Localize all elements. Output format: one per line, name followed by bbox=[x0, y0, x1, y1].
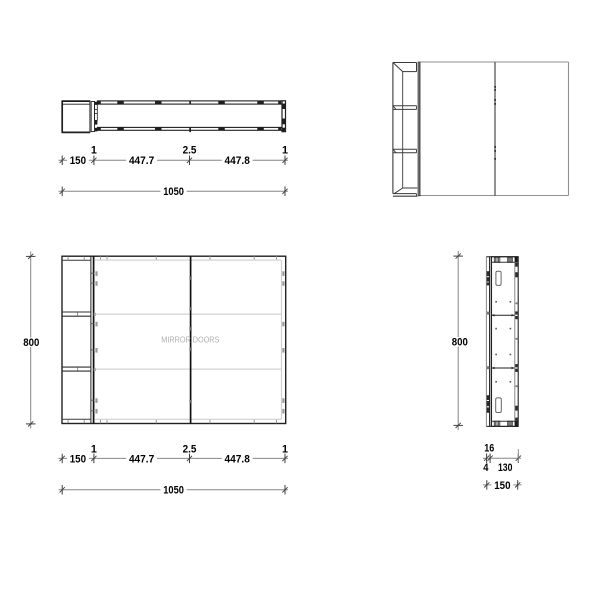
svg-text:447.7: 447.7 bbox=[129, 155, 154, 167]
svg-text:447.8: 447.8 bbox=[225, 155, 250, 167]
svg-text:447.8: 447.8 bbox=[225, 453, 250, 465]
svg-text:150: 150 bbox=[494, 480, 510, 492]
svg-text:800: 800 bbox=[452, 337, 468, 349]
svg-text:16: 16 bbox=[484, 443, 494, 455]
svg-text:1: 1 bbox=[282, 144, 288, 156]
svg-text:447.7: 447.7 bbox=[129, 453, 154, 465]
svg-text:1: 1 bbox=[282, 443, 288, 455]
svg-text:4: 4 bbox=[483, 462, 488, 474]
svg-text:1050: 1050 bbox=[163, 485, 184, 497]
svg-text:1: 1 bbox=[91, 443, 97, 455]
svg-text:2.5: 2.5 bbox=[183, 443, 197, 455]
svg-text:1: 1 bbox=[91, 144, 97, 156]
svg-text:1050: 1050 bbox=[163, 186, 184, 198]
svg-text:800: 800 bbox=[23, 337, 39, 349]
svg-text:130: 130 bbox=[498, 462, 513, 474]
svg-text:150: 150 bbox=[70, 453, 86, 465]
svg-text:MIRROR DOORS: MIRROR DOORS bbox=[161, 335, 219, 345]
svg-text:2.5: 2.5 bbox=[183, 144, 197, 156]
svg-text:150: 150 bbox=[70, 155, 86, 167]
